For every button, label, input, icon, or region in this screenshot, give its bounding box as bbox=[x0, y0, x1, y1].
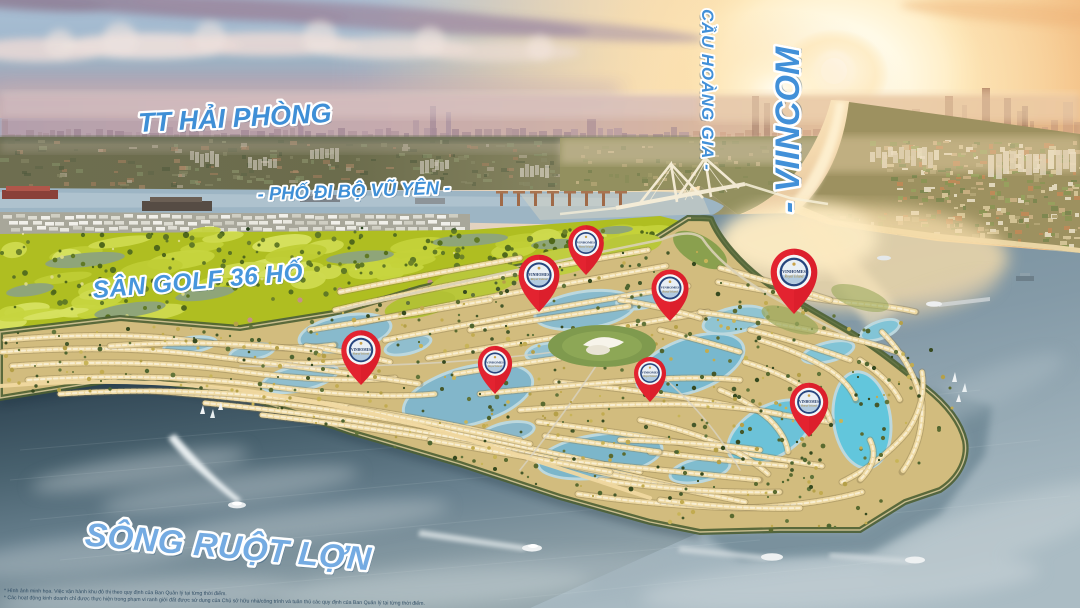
svg-text:VINHOMES: VINHOMES bbox=[486, 361, 504, 365]
svg-text:Royal Island: Royal Island bbox=[642, 375, 657, 378]
svg-text:Royal Island: Royal Island bbox=[487, 365, 502, 368]
svg-text:Royal Island: Royal Island bbox=[578, 245, 594, 248]
svg-text:Royal Island: Royal Island bbox=[661, 289, 678, 293]
svg-text:- VIINCOM: - VIINCOM bbox=[769, 46, 807, 213]
svg-text:Royal Island: Royal Island bbox=[800, 404, 817, 408]
svg-text:VINHOMES: VINHOMES bbox=[577, 241, 595, 245]
svg-text:Royal Island: Royal Island bbox=[784, 275, 804, 279]
svg-text:CẦU HOÀNG GIA -: CẦU HOÀNG GIA - bbox=[698, 9, 717, 171]
svg-text:Royal Island: Royal Island bbox=[530, 277, 548, 281]
svg-text:VINHOMES: VINHOMES bbox=[782, 269, 806, 274]
svg-text:Royal Island: Royal Island bbox=[352, 352, 370, 356]
